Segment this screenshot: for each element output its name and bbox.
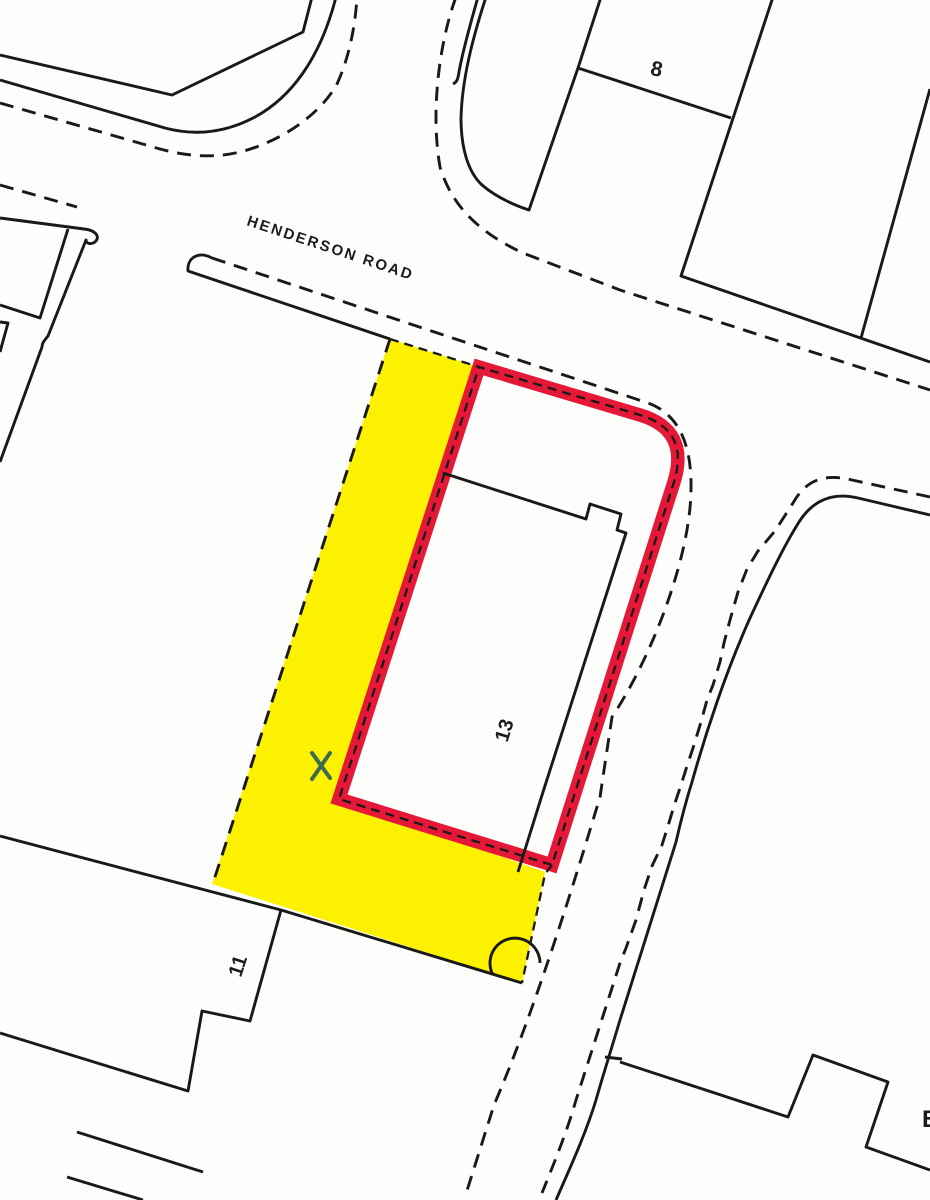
svg-text:11: 11 (225, 953, 252, 980)
svg-text:8: 8 (648, 57, 665, 82)
svg-text:HENDERSON ROAD: HENDERSON ROAD (245, 213, 416, 284)
svg-text:B: B (922, 1106, 930, 1133)
